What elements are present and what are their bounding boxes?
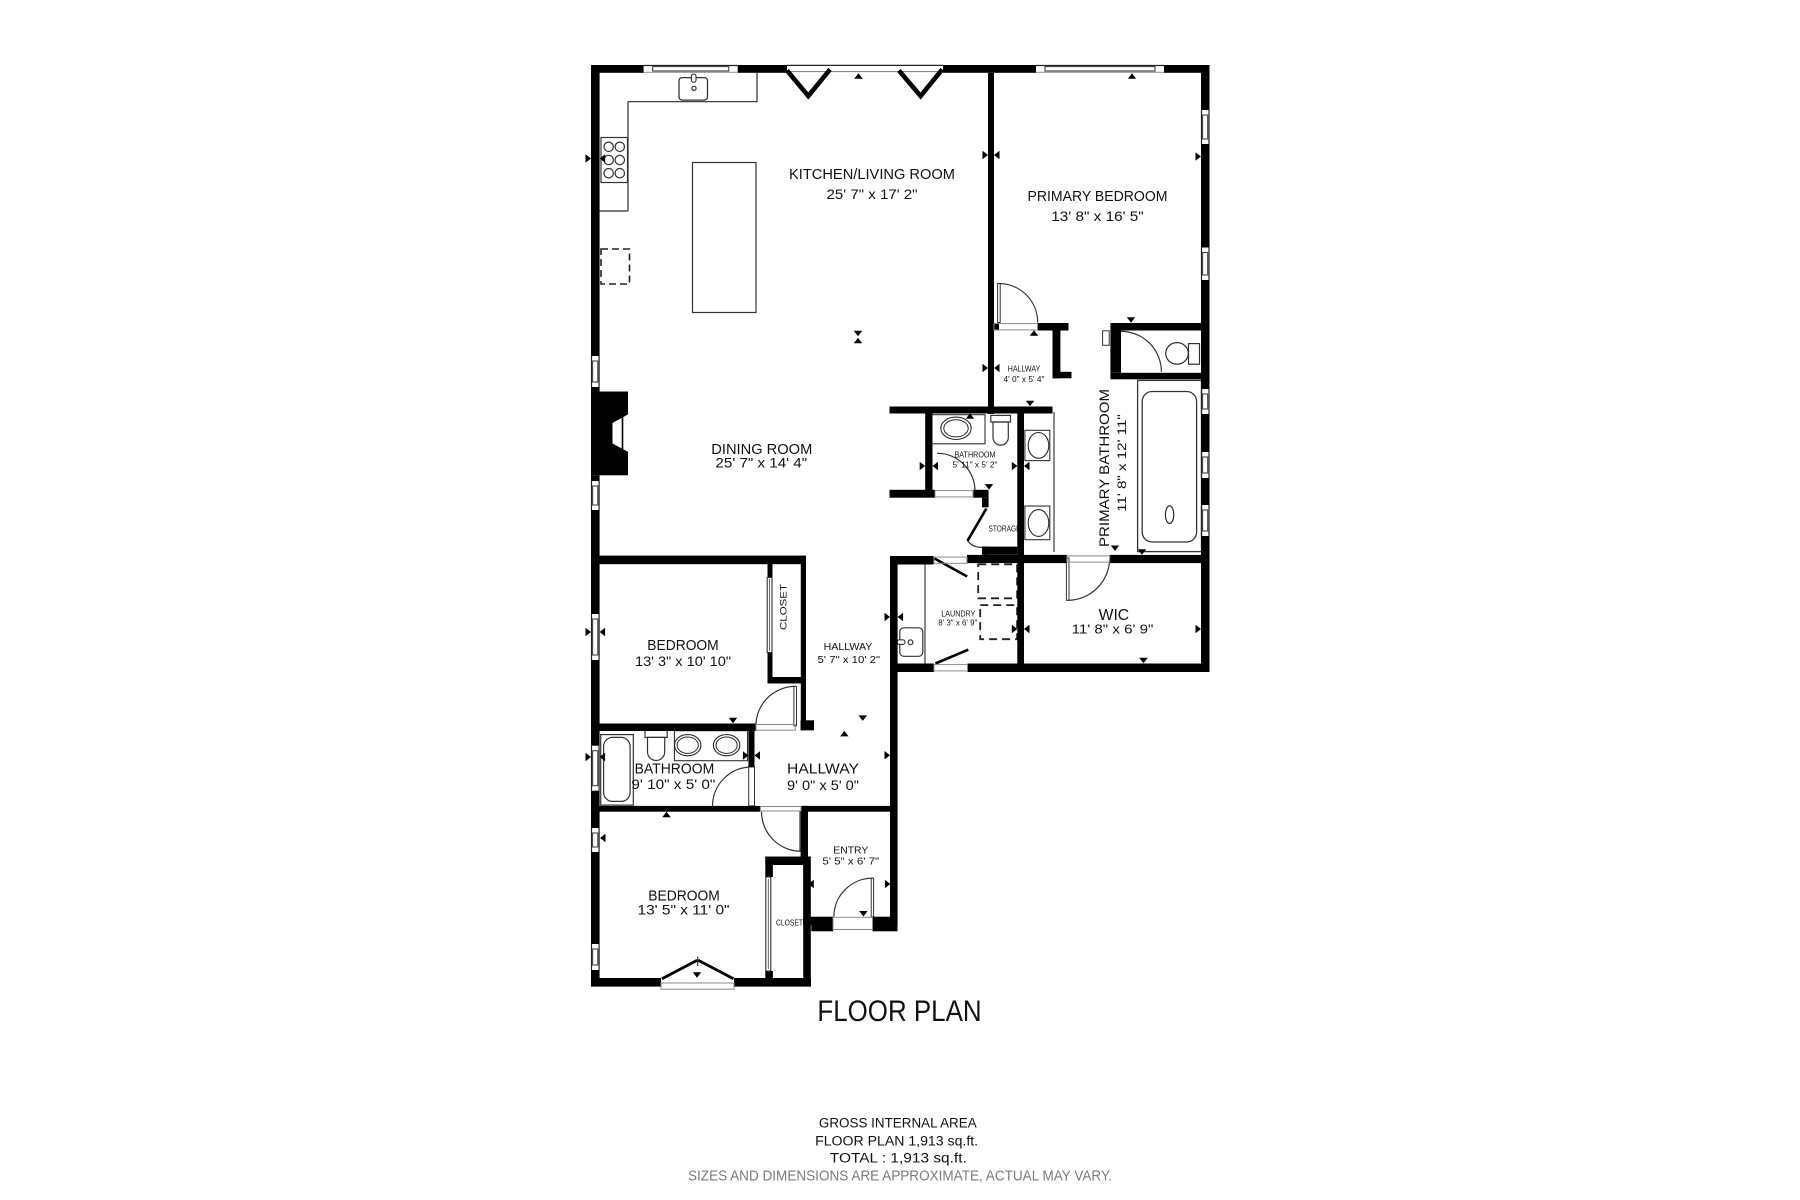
svg-text:GROSS INTERNAL AREA: GROSS INTERNAL AREA <box>819 1116 977 1131</box>
svg-text:TOTAL : 1,913 sq.ft.: TOTAL : 1,913 sq.ft. <box>830 1151 967 1166</box>
svg-text:SIZES AND DIMENSIONS ARE APPRO: SIZES AND DIMENSIONS ARE APPROXIMATE, AC… <box>688 1167 1112 1184</box>
svg-text:ENTRY: ENTRY <box>833 844 868 856</box>
svg-text:5' 7" x 10' 2": 5' 7" x 10' 2" <box>818 655 881 666</box>
svg-text:8' 3" x 6' 9": 8' 3" x 6' 9" <box>938 617 977 627</box>
svg-text:4' 0" x 5' 4": 4' 0" x 5' 4" <box>1004 374 1045 384</box>
svg-text:PRIMARY BATHROOM: PRIMARY BATHROOM <box>1096 389 1112 547</box>
svg-text:9' 10" x 5' 0": 9' 10" x 5' 0" <box>631 777 715 792</box>
svg-text:5' 11" x 5' 2": 5' 11" x 5' 2" <box>953 460 998 470</box>
svg-text:HALLWAY: HALLWAY <box>1008 364 1041 374</box>
svg-text:13' 8" x 16' 5": 13' 8" x 16' 5" <box>1051 209 1144 224</box>
svg-text:FLOOR PLAN 1,913 sq.ft.: FLOOR PLAN 1,913 sq.ft. <box>815 1134 978 1149</box>
svg-text:STORAGE: STORAGE <box>989 524 1021 534</box>
svg-text:HALLWAY: HALLWAY <box>824 642 873 653</box>
svg-text:25' 7" x 17' 2": 25' 7" x 17' 2" <box>827 187 918 202</box>
svg-text:PRIMARY BEDROOM: PRIMARY BEDROOM <box>1028 189 1168 205</box>
svg-text:BATHROOM: BATHROOM <box>955 450 996 460</box>
svg-text:BATHROOM: BATHROOM <box>635 762 715 778</box>
svg-text:WIC: WIC <box>1099 607 1130 624</box>
svg-text:13' 3" x 10' 10": 13' 3" x 10' 10" <box>635 654 731 669</box>
svg-text:9' 0" x 5' 0": 9' 0" x 5' 0" <box>787 778 859 793</box>
svg-text:25' 7" x 14' 4": 25' 7" x 14' 4" <box>715 456 807 471</box>
svg-text:5' 5" x 6' 7": 5' 5" x 6' 7" <box>822 856 879 868</box>
svg-text:BEDROOM: BEDROOM <box>647 638 718 654</box>
svg-text:CLOSET: CLOSET <box>776 919 803 928</box>
svg-text:CLOSET: CLOSET <box>779 584 790 630</box>
svg-text:11' 8" x 12' 11": 11' 8" x 12' 11" <box>1115 414 1129 512</box>
svg-text:HALLWAY: HALLWAY <box>787 762 859 778</box>
svg-text:FLOOR PLAN: FLOOR PLAN <box>817 995 981 1028</box>
svg-text:KITCHEN/LIVING ROOM: KITCHEN/LIVING ROOM <box>789 167 955 183</box>
svg-text:11' 8" x 6' 9": 11' 8" x 6' 9" <box>1072 622 1154 636</box>
svg-text:13' 5" x 11' 0": 13' 5" x 11' 0" <box>638 903 730 918</box>
